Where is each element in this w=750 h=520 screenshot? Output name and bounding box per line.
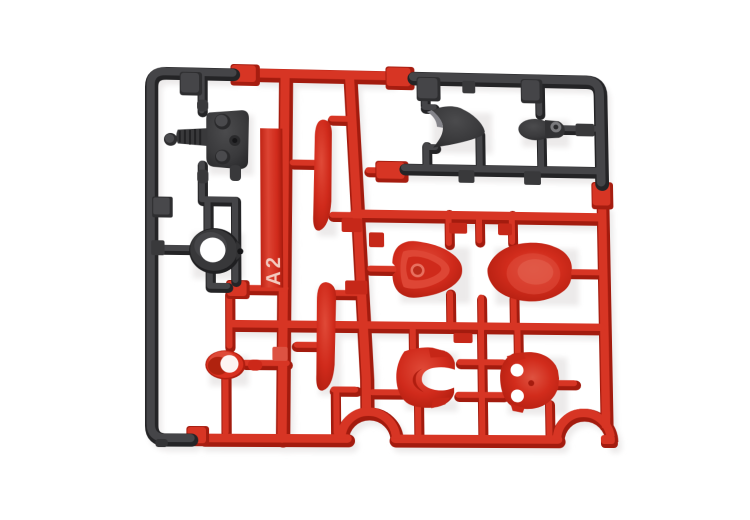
svg-text:A2: A2 (263, 254, 285, 286)
